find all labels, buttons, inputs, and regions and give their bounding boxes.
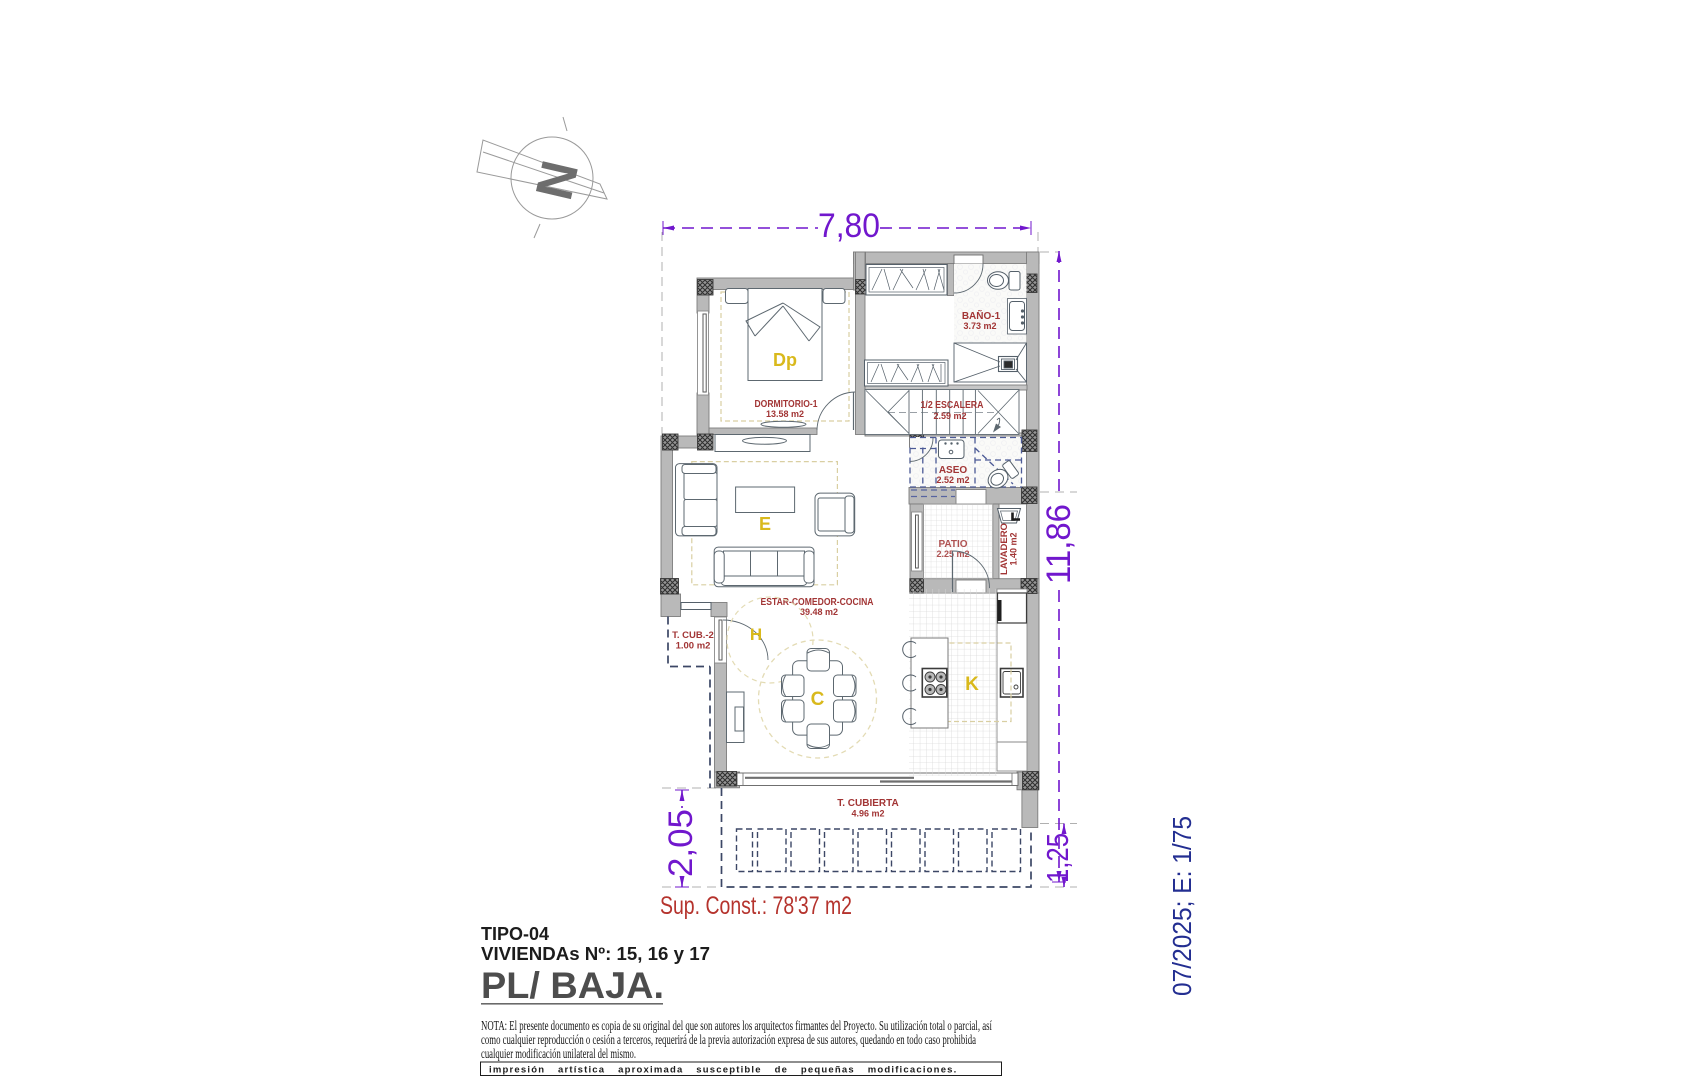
svg-text:TIPO-04: TIPO-04 <box>481 924 549 944</box>
svg-text:K: K <box>965 674 979 695</box>
svg-text:Dp: Dp <box>773 350 797 370</box>
svg-text:T. CUB.-2: T. CUB.-2 <box>672 630 714 641</box>
svg-text:1/2 ESCALERA: 1/2 ESCALERA <box>921 400 984 411</box>
svg-text:PL/ BAJA.: PL/ BAJA. <box>481 965 664 1006</box>
svg-text:como cualquier reproducción o: como cualquier reproducción o cesión a t… <box>481 1032 976 1047</box>
svg-text:C: C <box>811 689 825 710</box>
svg-text:2,05: 2,05 <box>662 809 700 877</box>
svg-text:cualquier modificación unilate: cualquier modificación unilateral del mi… <box>481 1046 636 1061</box>
svg-text:13.58 m2: 13.58 m2 <box>766 409 804 419</box>
svg-text:impresión artística aproximada: impresión artística aproximada susceptib… <box>489 1065 958 1076</box>
svg-text:07/2025; E: 1/75: 07/2025; E: 1/75 <box>1167 816 1197 996</box>
svg-text:E: E <box>759 514 771 534</box>
svg-text:2.52 m2: 2.52 m2 <box>936 475 969 485</box>
svg-text:7,80: 7,80 <box>818 207 880 245</box>
svg-text:1.40 m2: 1.40 m2 <box>1009 532 1019 565</box>
svg-text:Sup. Const.: 78'37 m2: Sup. Const.: 78'37 m2 <box>660 892 852 920</box>
svg-text:1,25: 1,25 <box>1040 833 1075 883</box>
svg-text:T. CUBIERTA: T. CUBIERTA <box>837 798 898 809</box>
svg-text:H: H <box>750 625 762 644</box>
svg-text:VIVIENDAs Nº: 15, 16 y 17: VIVIENDAs Nº: 15, 16 y 17 <box>481 944 710 964</box>
svg-text:11,86: 11,86 <box>1040 504 1078 584</box>
svg-text:4.96 m2: 4.96 m2 <box>851 809 884 819</box>
svg-text:1.00 m2: 1.00 m2 <box>676 641 711 652</box>
svg-text:2.59 m2: 2.59 m2 <box>933 411 966 421</box>
svg-text:3.73 m2: 3.73 m2 <box>963 321 996 331</box>
svg-text:NOTA: El presente documento es: NOTA: El presente documento es copia de … <box>481 1018 992 1033</box>
